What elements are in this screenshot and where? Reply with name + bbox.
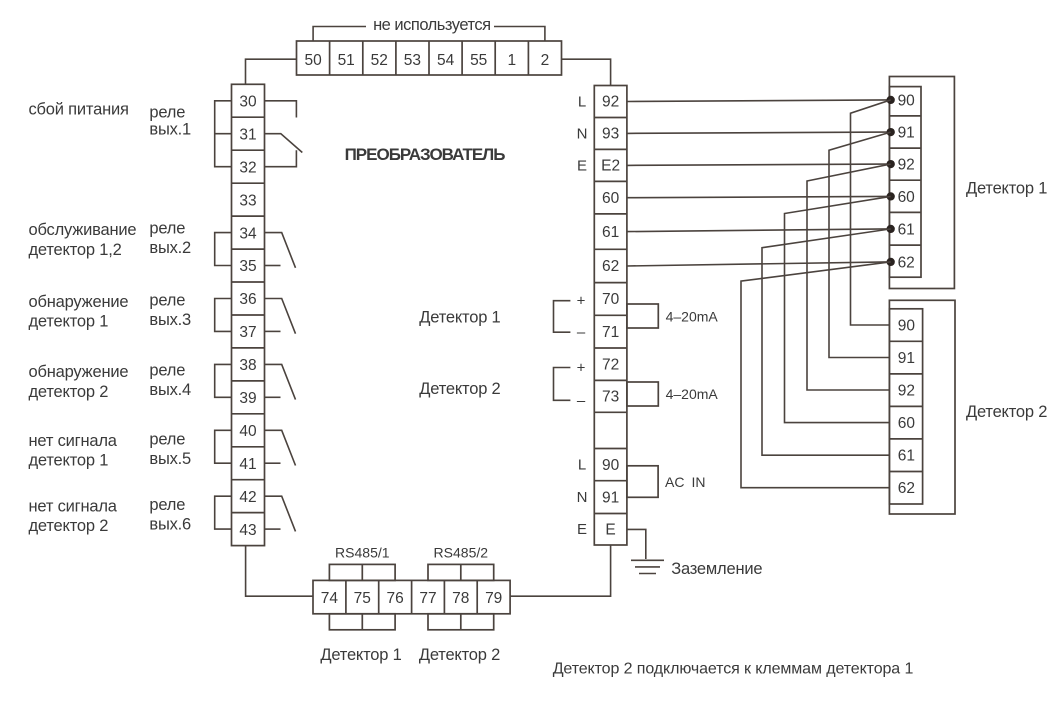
svg-text:72: 72	[602, 356, 619, 373]
svg-text:нет сигнала: нет сигнала	[29, 498, 118, 516]
svg-text:L: L	[578, 94, 586, 111]
svg-text:–: –	[577, 324, 586, 341]
svg-text:92: 92	[898, 382, 915, 399]
svg-text:вых.4: вых.4	[149, 381, 191, 399]
svg-text:90: 90	[898, 317, 916, 334]
svg-text:73: 73	[602, 389, 619, 406]
svg-text:реле: реле	[149, 430, 185, 448]
svg-text:77: 77	[419, 590, 436, 607]
svg-text:41: 41	[239, 456, 256, 473]
svg-text:RS485/1: RS485/1	[335, 545, 390, 561]
svg-text:90: 90	[602, 457, 620, 474]
svg-text:91: 91	[602, 489, 619, 506]
svg-text:60: 60	[898, 189, 916, 206]
svg-text:76: 76	[386, 590, 403, 607]
svg-text:71: 71	[602, 324, 619, 341]
svg-text:53: 53	[404, 52, 421, 69]
svg-text:90: 90	[898, 92, 916, 109]
svg-text:реле: реле	[149, 362, 185, 380]
svg-text:43: 43	[239, 522, 256, 539]
svg-text:Заземление: Заземление	[671, 560, 762, 578]
svg-text:31: 31	[239, 126, 256, 143]
svg-text:вых.2: вых.2	[149, 239, 191, 257]
svg-text:обслуживание: обслуживание	[29, 221, 137, 239]
svg-text:91: 91	[898, 350, 915, 367]
svg-text:AC IN: AC IN	[665, 474, 705, 490]
svg-text:+: +	[577, 293, 586, 310]
svg-text:79: 79	[485, 590, 502, 607]
svg-text:E: E	[577, 157, 587, 174]
svg-text:E: E	[577, 521, 587, 538]
svg-text:62: 62	[898, 480, 915, 497]
svg-text:вых.3: вых.3	[149, 311, 191, 329]
svg-text:34: 34	[239, 225, 257, 242]
svg-text:E2: E2	[601, 158, 620, 175]
svg-text:ПРЕОБРАЗОВАТЕЛЬ: ПРЕОБРАЗОВАТЕЛЬ	[345, 145, 506, 164]
svg-text:40: 40	[239, 423, 257, 440]
svg-text:вых.1: вых.1	[149, 121, 191, 139]
svg-text:51: 51	[338, 52, 355, 69]
svg-text:Детектор 2: Детектор 2	[419, 646, 500, 664]
svg-text:детектор 1,2: детектор 1,2	[29, 241, 122, 259]
svg-text:реле: реле	[149, 496, 185, 514]
svg-text:детектор 1: детектор 1	[29, 452, 109, 470]
svg-text:91: 91	[898, 125, 915, 142]
svg-text:Детектор 2: Детектор 2	[966, 403, 1047, 421]
svg-text:60: 60	[898, 415, 916, 432]
svg-text:36: 36	[239, 291, 256, 308]
svg-text:37: 37	[239, 324, 256, 341]
svg-text:32: 32	[239, 159, 256, 176]
svg-text:2: 2	[541, 52, 550, 69]
svg-text:N: N	[577, 489, 588, 506]
svg-text:детектор 2: детектор 2	[29, 383, 109, 401]
svg-text:детектор 2: детектор 2	[29, 517, 109, 535]
svg-text:детектор 1: детектор 1	[29, 313, 109, 331]
svg-text:E: E	[605, 522, 615, 539]
svg-text:вых.6: вых.6	[149, 516, 191, 534]
svg-text:реле: реле	[149, 291, 185, 309]
svg-text:55: 55	[470, 52, 487, 69]
svg-text:RS485/2: RS485/2	[434, 545, 489, 561]
svg-text:сбой питания: сбой питания	[29, 101, 129, 119]
svg-text:70: 70	[602, 291, 620, 308]
svg-text:61: 61	[898, 448, 915, 465]
svg-text:–: –	[577, 392, 586, 409]
svg-text:обнаружение: обнаружение	[29, 293, 129, 311]
svg-text:Детектор 1: Детектор 1	[966, 180, 1047, 198]
svg-text:4–20mA: 4–20mA	[666, 309, 719, 325]
svg-text:38: 38	[239, 357, 256, 374]
svg-text:60: 60	[602, 190, 620, 207]
svg-text:52: 52	[371, 52, 388, 69]
svg-text:74: 74	[321, 590, 339, 607]
svg-text:75: 75	[354, 590, 371, 607]
svg-text:нет сигнала: нет сигнала	[29, 432, 118, 450]
svg-text:33: 33	[239, 192, 256, 209]
svg-text:+: +	[577, 360, 586, 377]
svg-text:61: 61	[602, 224, 619, 241]
svg-text:39: 39	[239, 390, 256, 407]
svg-text:62: 62	[898, 254, 915, 271]
svg-text:реле: реле	[149, 220, 185, 238]
svg-text:Детектор 1: Детектор 1	[419, 308, 500, 326]
svg-text:50: 50	[304, 52, 322, 69]
svg-text:30: 30	[239, 94, 257, 111]
svg-text:42: 42	[239, 489, 256, 506]
svg-text:L: L	[578, 457, 586, 474]
svg-text:Детектор 1: Детектор 1	[320, 646, 401, 664]
svg-text:4–20mA: 4–20mA	[666, 386, 719, 402]
svg-text:реле: реле	[149, 104, 185, 122]
svg-text:62: 62	[602, 258, 619, 275]
svg-text:1: 1	[507, 52, 516, 69]
svg-text:Детектор 2: Детектор 2	[419, 380, 500, 398]
svg-text:54: 54	[437, 52, 455, 69]
svg-text:61: 61	[898, 221, 915, 238]
svg-text:78: 78	[452, 590, 469, 607]
svg-text:N: N	[577, 125, 588, 142]
svg-text:не используется: не используется	[373, 16, 490, 34]
svg-text:Детектор 2 подключается к клем: Детектор 2 подключается к клеммам детект…	[553, 660, 914, 677]
svg-text:35: 35	[239, 258, 256, 275]
svg-text:92: 92	[602, 94, 619, 111]
svg-text:вых.5: вых.5	[149, 450, 191, 468]
svg-text:93: 93	[602, 126, 619, 143]
svg-text:обнаружение: обнаружение	[29, 363, 129, 381]
svg-text:92: 92	[898, 157, 915, 174]
